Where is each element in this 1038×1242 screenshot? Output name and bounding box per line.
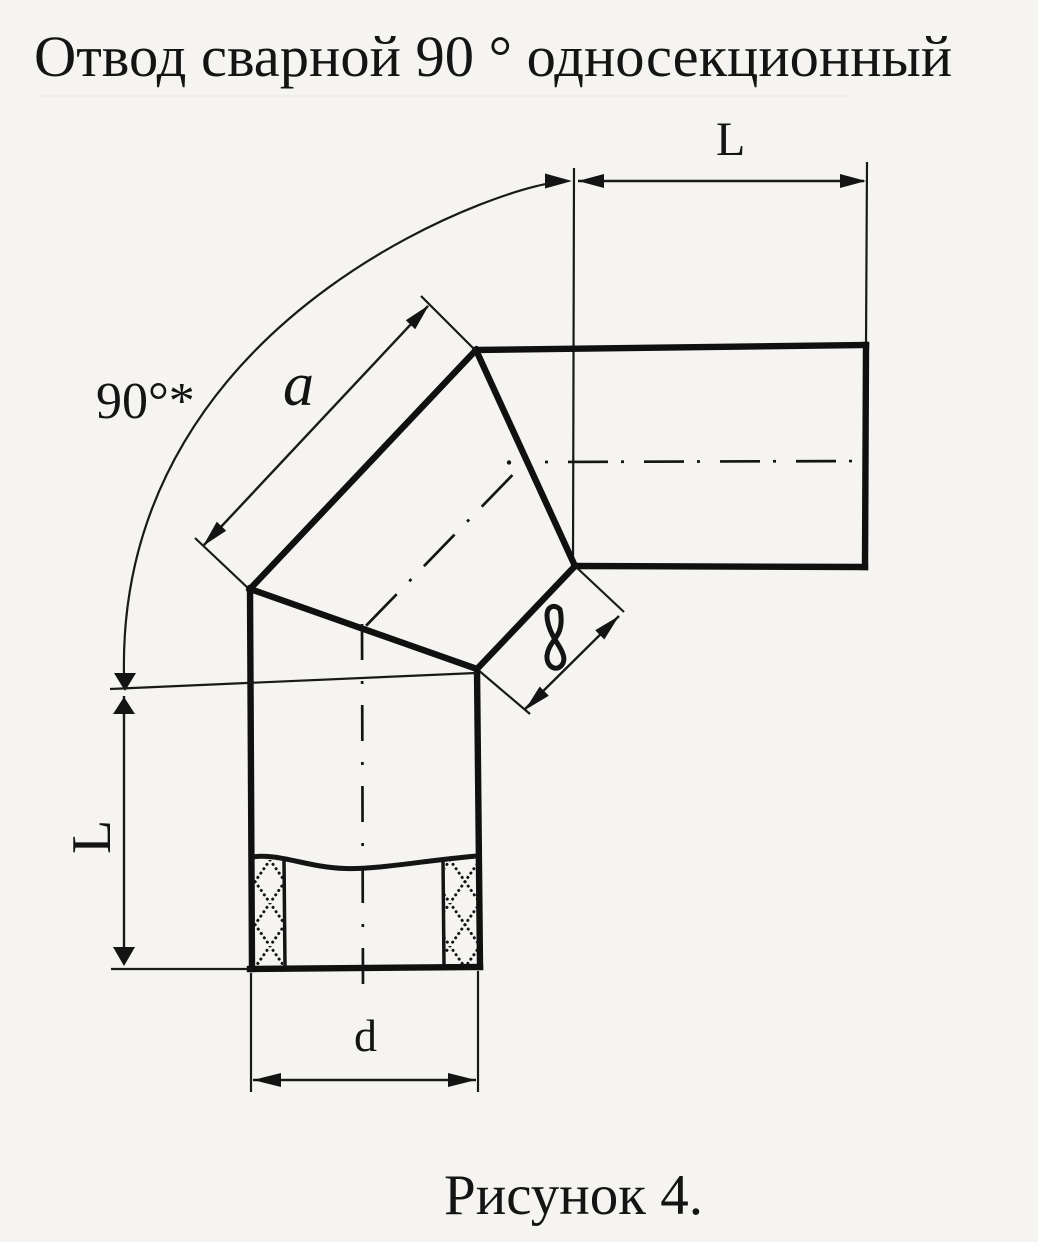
svg-text:90°*: 90°* bbox=[96, 373, 195, 430]
svg-text:Рисунок 4.: Рисунок 4. bbox=[444, 1164, 703, 1227]
svg-text:Отвод сварной 90 ° односекцион: Отвод сварной 90 ° односекционный bbox=[34, 24, 952, 89]
svg-text:L: L bbox=[61, 820, 123, 854]
svg-text:d: d bbox=[354, 1010, 377, 1061]
svg-text:a: a bbox=[283, 351, 314, 419]
svg-text:L: L bbox=[716, 113, 745, 166]
